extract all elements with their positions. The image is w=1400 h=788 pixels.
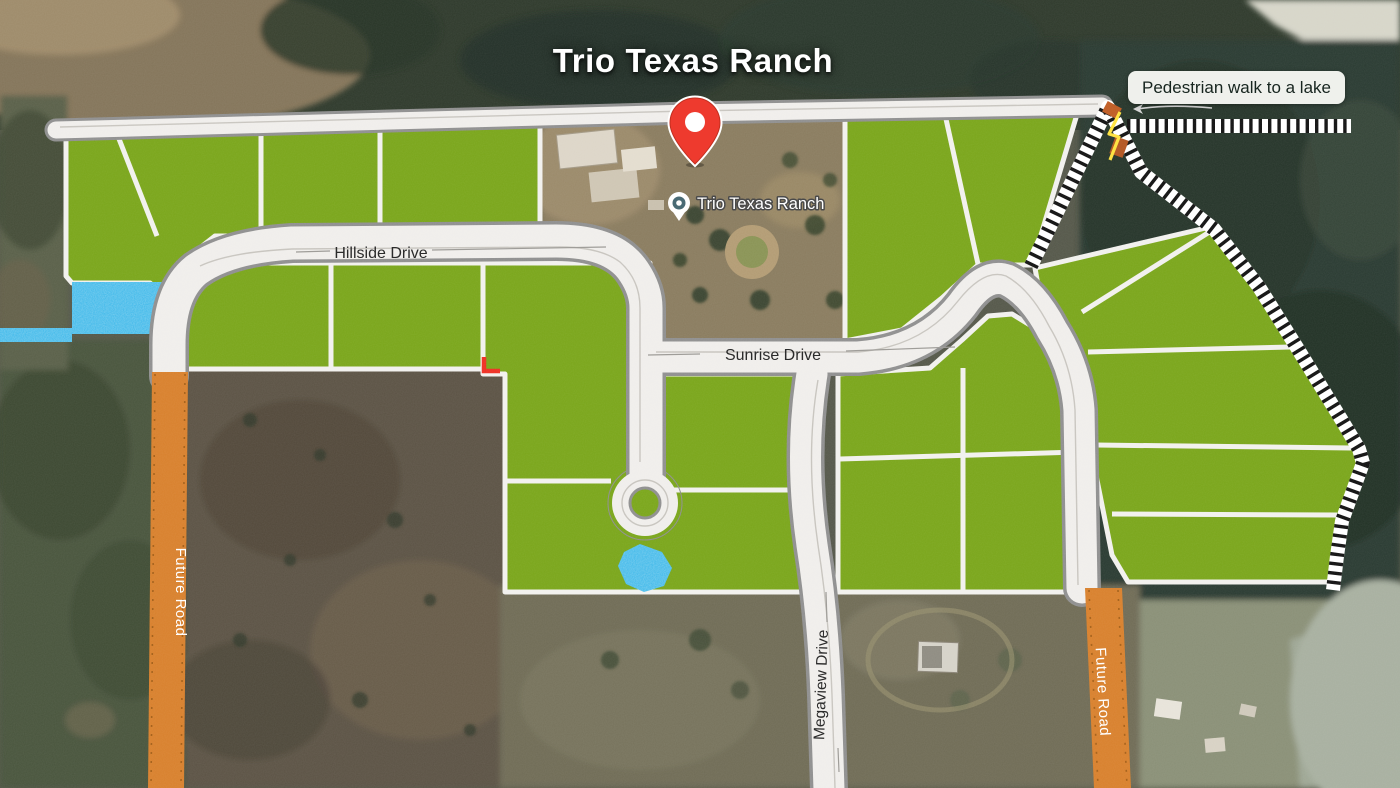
poi-label: Trio Texas Ranch: [697, 195, 824, 213]
site-plan-map: Hillside Drive Sunrise Drive Megaview Dr…: [0, 0, 1400, 788]
pedestrian-walk-callout: Pedestrian walk to a lake: [1128, 71, 1345, 104]
road-label-sunrise: Sunrise Drive: [725, 347, 821, 364]
map-graphic: Hillside Drive Sunrise Drive Megaview Dr…: [0, 0, 1400, 788]
pedestrian-walk-callout-text: Pedestrian walk to a lake: [1142, 78, 1331, 98]
page-title: Trio Texas Ranch: [553, 42, 833, 80]
road-label-future-west: Future Road: [172, 548, 189, 637]
road-label-hillside: Hillside Drive: [334, 245, 427, 262]
